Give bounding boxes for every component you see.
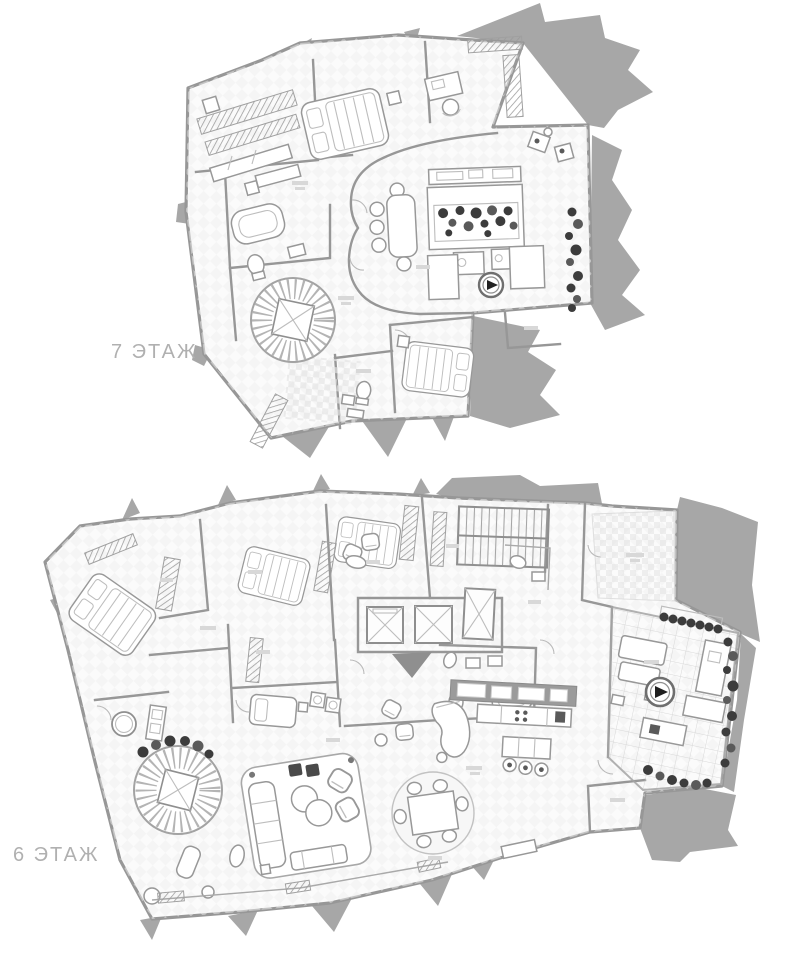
- floor7-spiral-staircase-icon: [251, 278, 335, 362]
- floor6-elevator-1: [367, 607, 403, 643]
- floor6-living-set: [239, 751, 373, 880]
- floor6-label: 6 ЭТАЖ: [13, 844, 99, 867]
- floor6-elevator-2: [415, 606, 452, 643]
- floor7-label: 7 ЭТАЖ: [111, 341, 197, 364]
- fire-pit-circle-icon: [646, 678, 674, 706]
- plans-svg: [0, 0, 800, 955]
- floorplan-image: 7 ЭТАЖ 6 ЭТАЖ: [0, 0, 800, 955]
- floor7-cooktop-circle-icon: [479, 273, 503, 297]
- floor6-plan: [45, 474, 760, 940]
- floor6-spiral-staircase-icon: [134, 736, 222, 835]
- floor6-switchback-staircase-icon: [457, 506, 549, 567]
- floor7-plan: [176, 3, 653, 458]
- floor6-kitchen-terrace: [608, 606, 739, 790]
- floor6-elevator-3: [463, 588, 496, 640]
